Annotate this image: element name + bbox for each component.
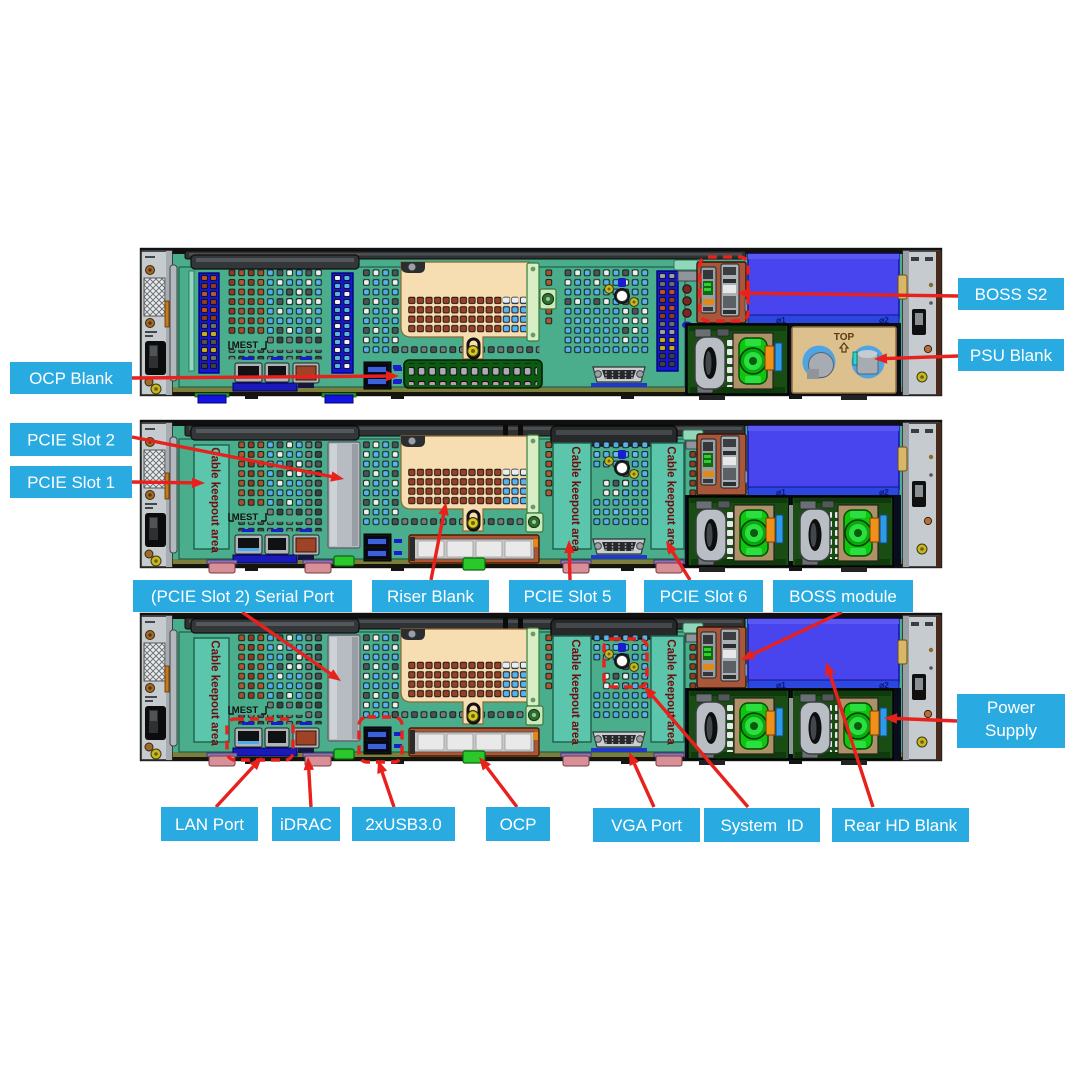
svg-text:iDRAC: iDRAC: [280, 815, 332, 834]
svg-text:OCP Blank: OCP Blank: [29, 369, 113, 388]
svg-text:Cable keepout area: Cable keepout area: [209, 447, 221, 553]
svg-text:MEST: MEST: [232, 512, 259, 523]
svg-text:TOP: TOP: [834, 332, 855, 343]
svg-text:Supply: Supply: [985, 721, 1037, 740]
svg-text:Cable keepout area: Cable keepout area: [665, 639, 677, 745]
svg-text:OCP: OCP: [500, 815, 537, 834]
svg-text:VGA Port: VGA Port: [611, 816, 682, 835]
svg-text:2xUSB3.0: 2xUSB3.0: [365, 815, 442, 834]
svg-text:MEST: MEST: [232, 340, 259, 351]
svg-text:BOSS S2: BOSS S2: [975, 285, 1048, 304]
svg-text:PCIE Slot 1: PCIE Slot 1: [27, 473, 115, 492]
svg-text:System ID: System ID: [720, 816, 803, 835]
svg-text:PCIE Slot 2: PCIE Slot 2: [27, 431, 115, 450]
svg-text:LAN Port: LAN Port: [175, 815, 244, 834]
svg-text:Cable keepout area: Cable keepout area: [665, 446, 677, 552]
svg-text:PSU Blank: PSU Blank: [970, 346, 1053, 365]
svg-text:MEST: MEST: [232, 705, 259, 716]
svg-text:Power: Power: [987, 698, 1036, 717]
svg-text:BOSS module: BOSS module: [789, 587, 897, 606]
svg-text:PCIE Slot 5: PCIE Slot 5: [524, 587, 612, 606]
svg-text:(PCIE Slot 2) Serial Port: (PCIE Slot 2) Serial Port: [151, 587, 335, 606]
svg-text:Riser Blank: Riser Blank: [387, 587, 474, 606]
svg-text:Cable keepout area: Cable keepout area: [569, 639, 581, 745]
svg-text:Cable keepout area: Cable keepout area: [569, 446, 581, 552]
svg-text:Rear HD Blank: Rear HD Blank: [844, 816, 958, 835]
svg-text:PCIE Slot 6: PCIE Slot 6: [660, 587, 748, 606]
svg-text:Cable keepout area: Cable keepout area: [209, 640, 221, 746]
